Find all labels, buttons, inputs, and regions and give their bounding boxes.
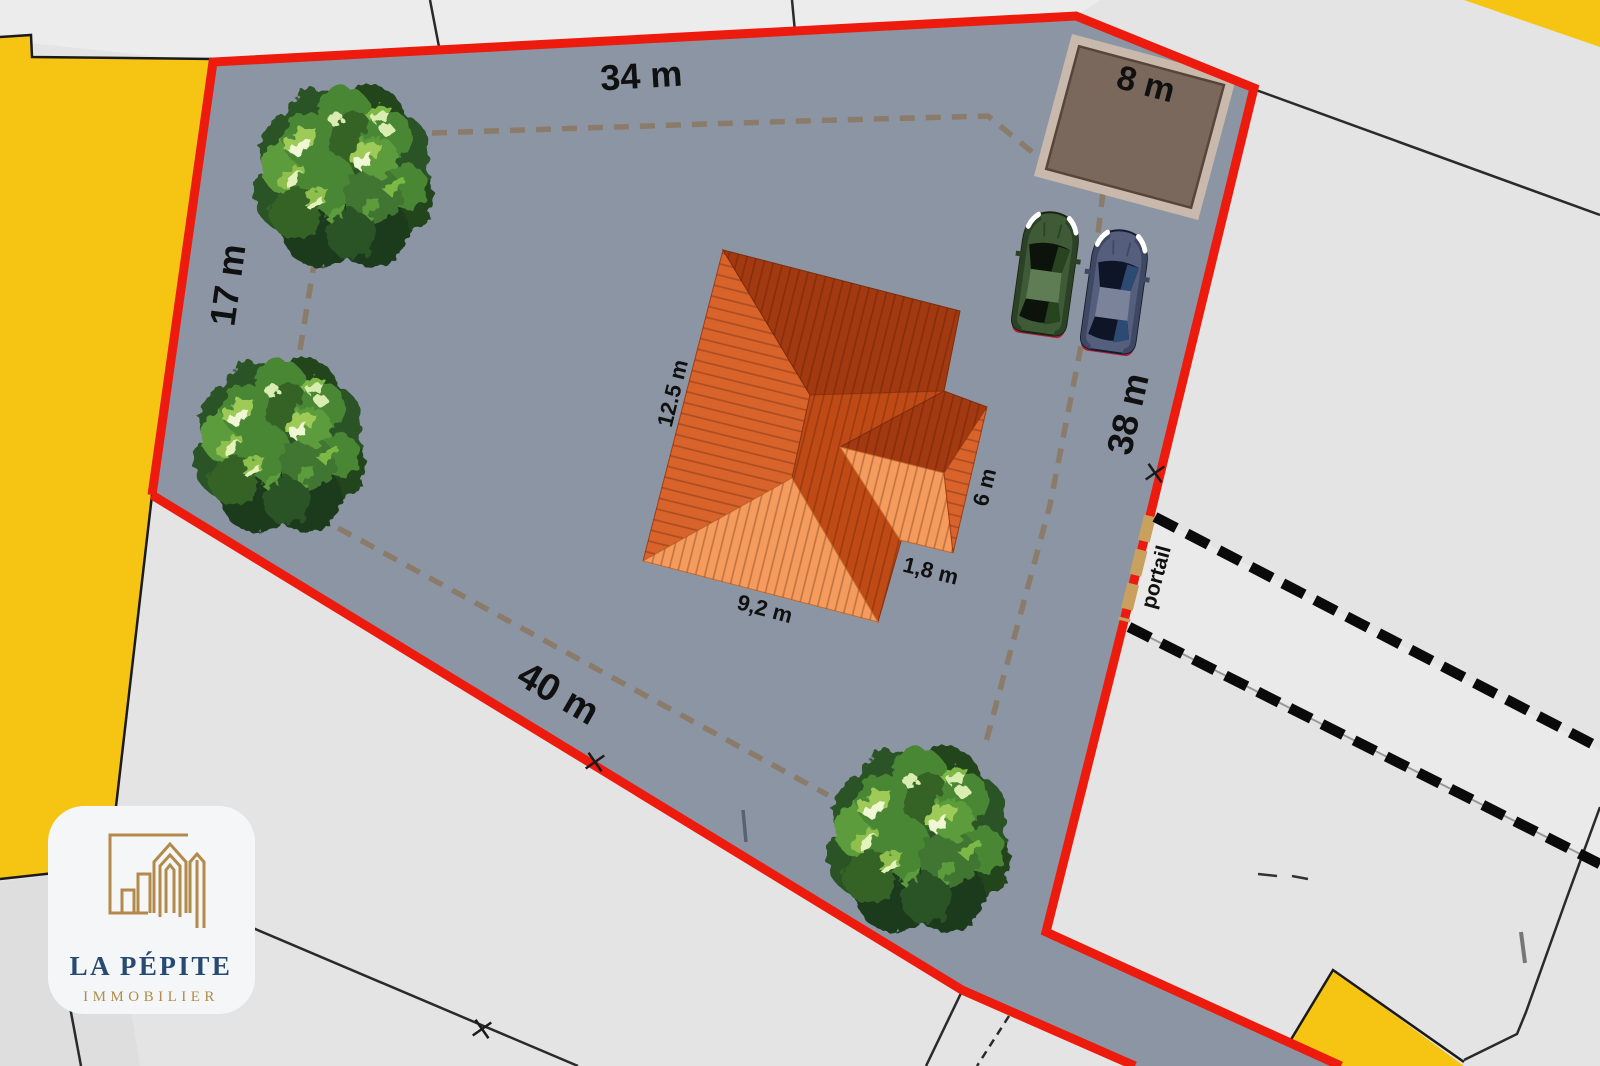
svg-text:34 m: 34 m: [599, 53, 683, 99]
svg-text:LA PÉPITE: LA PÉPITE: [70, 951, 233, 981]
svg-text:IMMOBILIER: IMMOBILIER: [83, 989, 219, 1005]
